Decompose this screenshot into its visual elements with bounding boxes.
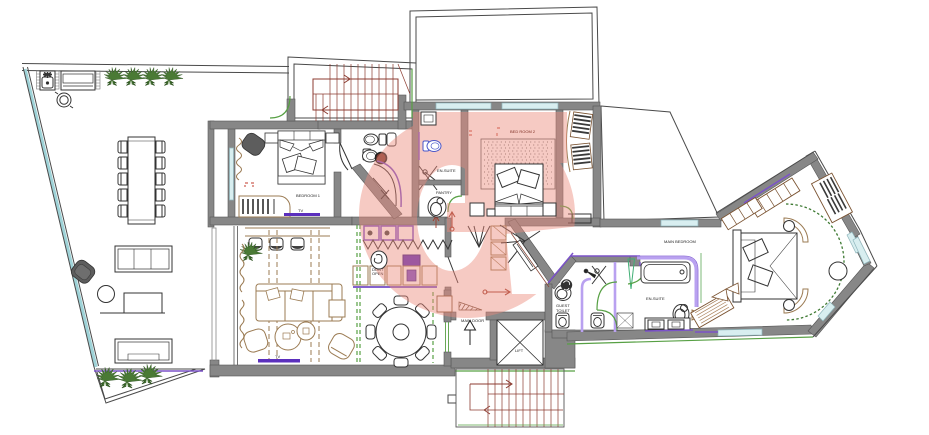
svg-text:MAIN DOOR: MAIN DOOR [461,318,484,323]
svg-text:TV: TV [298,208,303,213]
svg-text:PANTRY: PANTRY [436,190,452,195]
svg-text:BEDROOM 1: BEDROOM 1 [296,193,321,198]
svg-text:EN-SUITE: EN-SUITE [437,168,456,173]
svg-text:LIFT: LIFT [515,348,524,353]
svg-text:TOILET: TOILET [556,308,570,313]
svg-text:MAIN BEDROOM: MAIN BEDROOM [664,239,696,244]
svg-text:EN-SUITE: EN-SUITE [646,296,665,301]
svg-text:BED ROOM 2: BED ROOM 2 [510,129,536,134]
svg-text:TV: TV [275,354,280,359]
